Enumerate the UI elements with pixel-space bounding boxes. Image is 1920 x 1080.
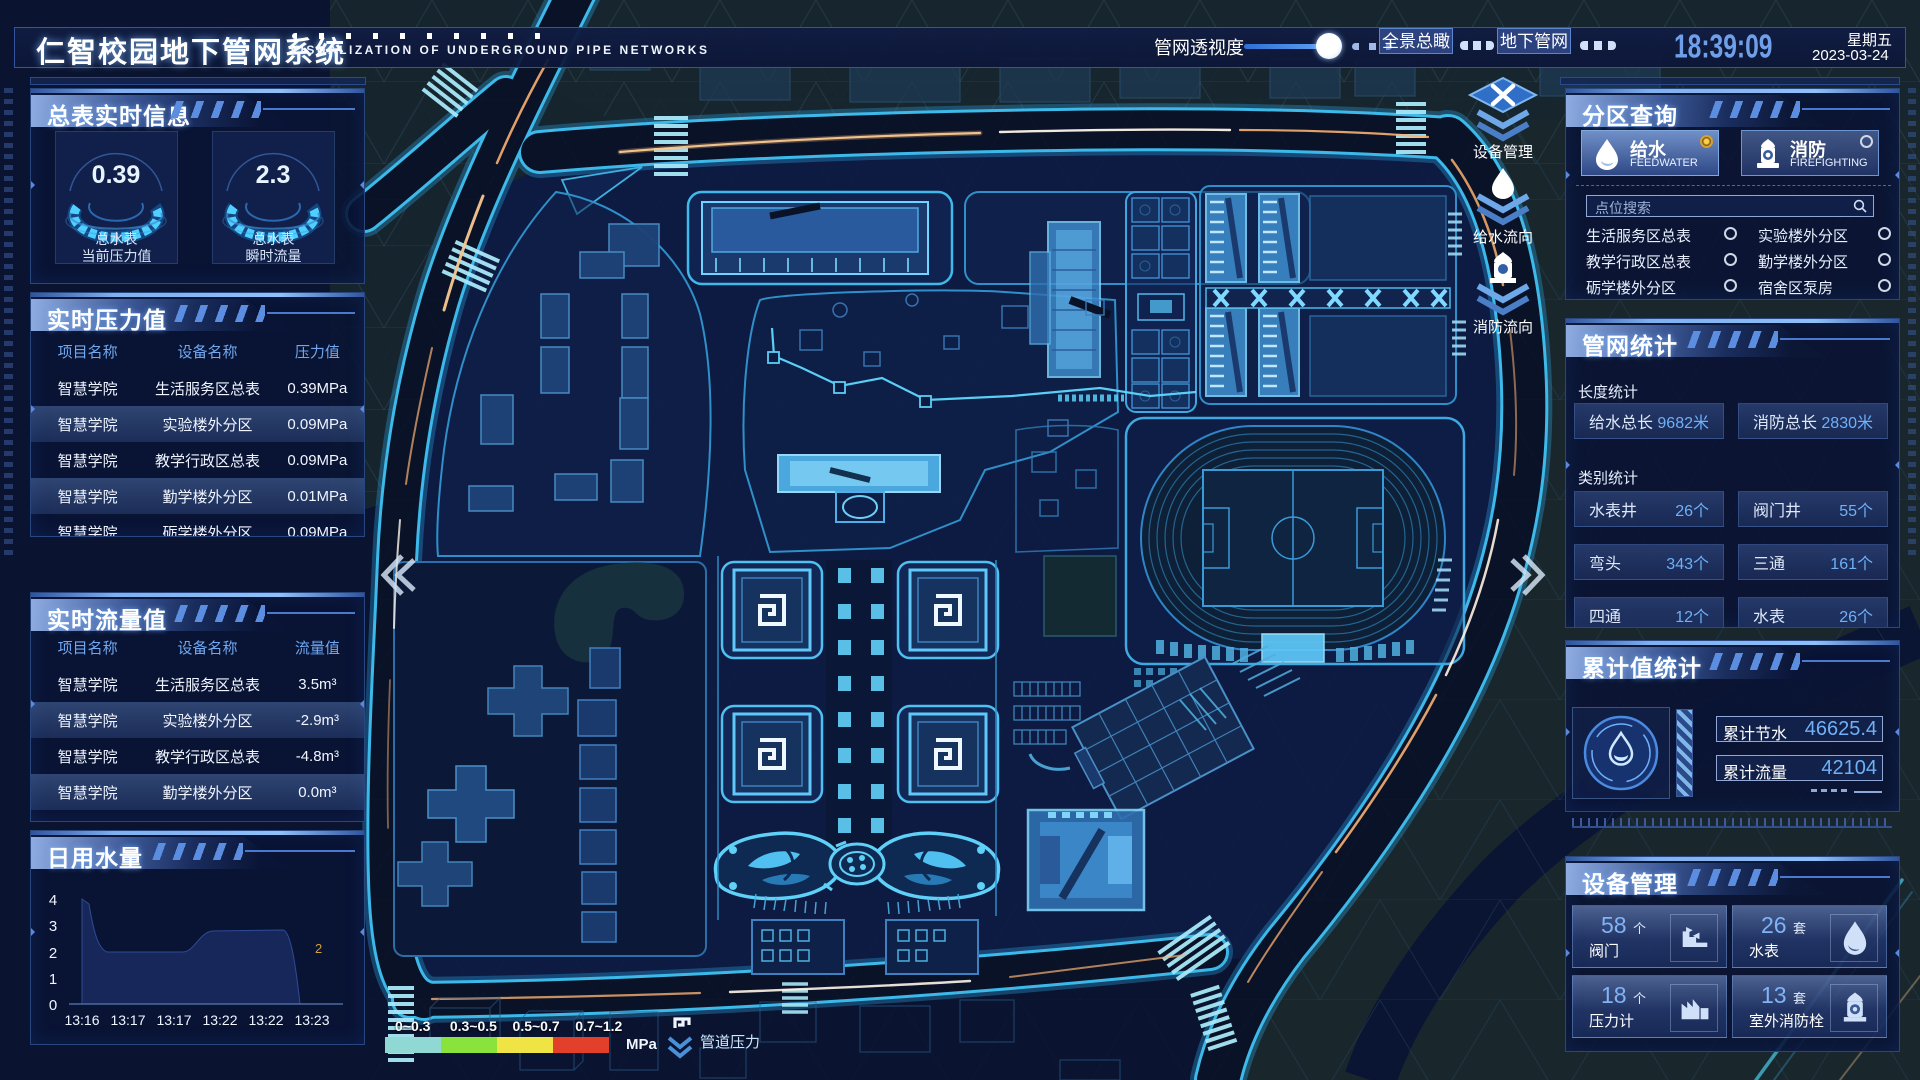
svg-text:0.39: 0.39 <box>92 161 141 189</box>
svg-text:0: 0 <box>49 997 57 1014</box>
svg-text:1: 1 <box>49 971 57 988</box>
svg-text:2: 2 <box>315 941 322 956</box>
svg-text:4: 4 <box>49 892 57 909</box>
svg-text:13:23: 13:23 <box>294 1012 329 1028</box>
svg-text:消防流向: 消防流向 <box>1473 319 1533 336</box>
svg-text:2: 2 <box>49 945 57 962</box>
svg-text:2.3: 2.3 <box>256 161 291 189</box>
svg-text:13:17: 13:17 <box>156 1012 191 1028</box>
svg-text:13:22: 13:22 <box>202 1012 237 1028</box>
svg-text:13:22: 13:22 <box>248 1012 283 1028</box>
svg-text:3: 3 <box>49 918 57 935</box>
svg-text:设备管理: 设备管理 <box>1473 144 1533 161</box>
svg-text:13:17: 13:17 <box>110 1012 145 1028</box>
svg-text:给水流向: 给水流向 <box>1473 229 1533 246</box>
svg-text:13:16: 13:16 <box>64 1012 99 1028</box>
